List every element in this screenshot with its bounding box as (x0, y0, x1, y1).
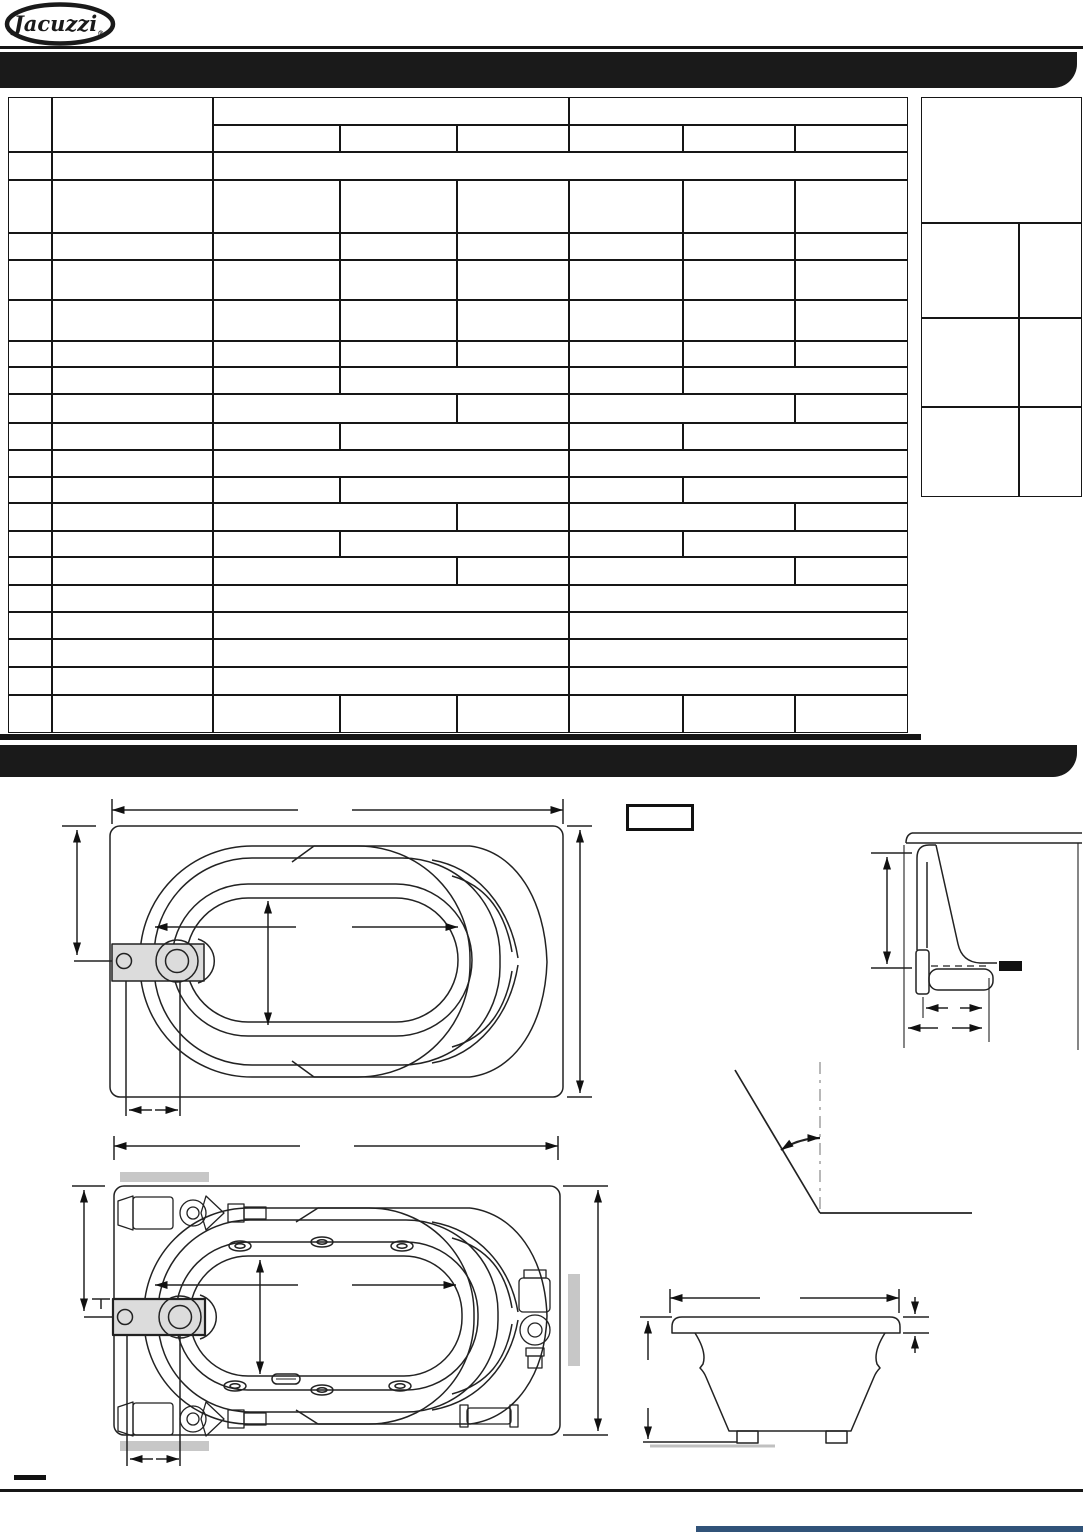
crop-mark (14, 1475, 46, 1480)
gray-bar-top (120, 1172, 209, 1182)
bath-top-view-drawing (62, 799, 592, 1116)
angle-arc-arrow (781, 1138, 820, 1150)
gray-bar-bottom (120, 1441, 209, 1451)
heater-assembly-right (519, 1270, 550, 1368)
footer-rule (0, 1489, 1083, 1492)
spec-sheet-page: { "logo": { "brand": "Jacuzzi", "registe… (0, 0, 1083, 1532)
bath-side-view-drawing (871, 833, 1082, 1050)
tub-front-view-drawing (640, 1289, 929, 1446)
gray-bar-right (568, 1274, 580, 1366)
suction-fitting (460, 1405, 518, 1427)
whirlpool-top-view-drawing (72, 1136, 608, 1466)
wall-angle-diagram (735, 1062, 972, 1213)
jet-icons (224, 1237, 413, 1395)
technical-drawings (0, 0, 1083, 1532)
footer-accent-bar (696, 1526, 1083, 1532)
